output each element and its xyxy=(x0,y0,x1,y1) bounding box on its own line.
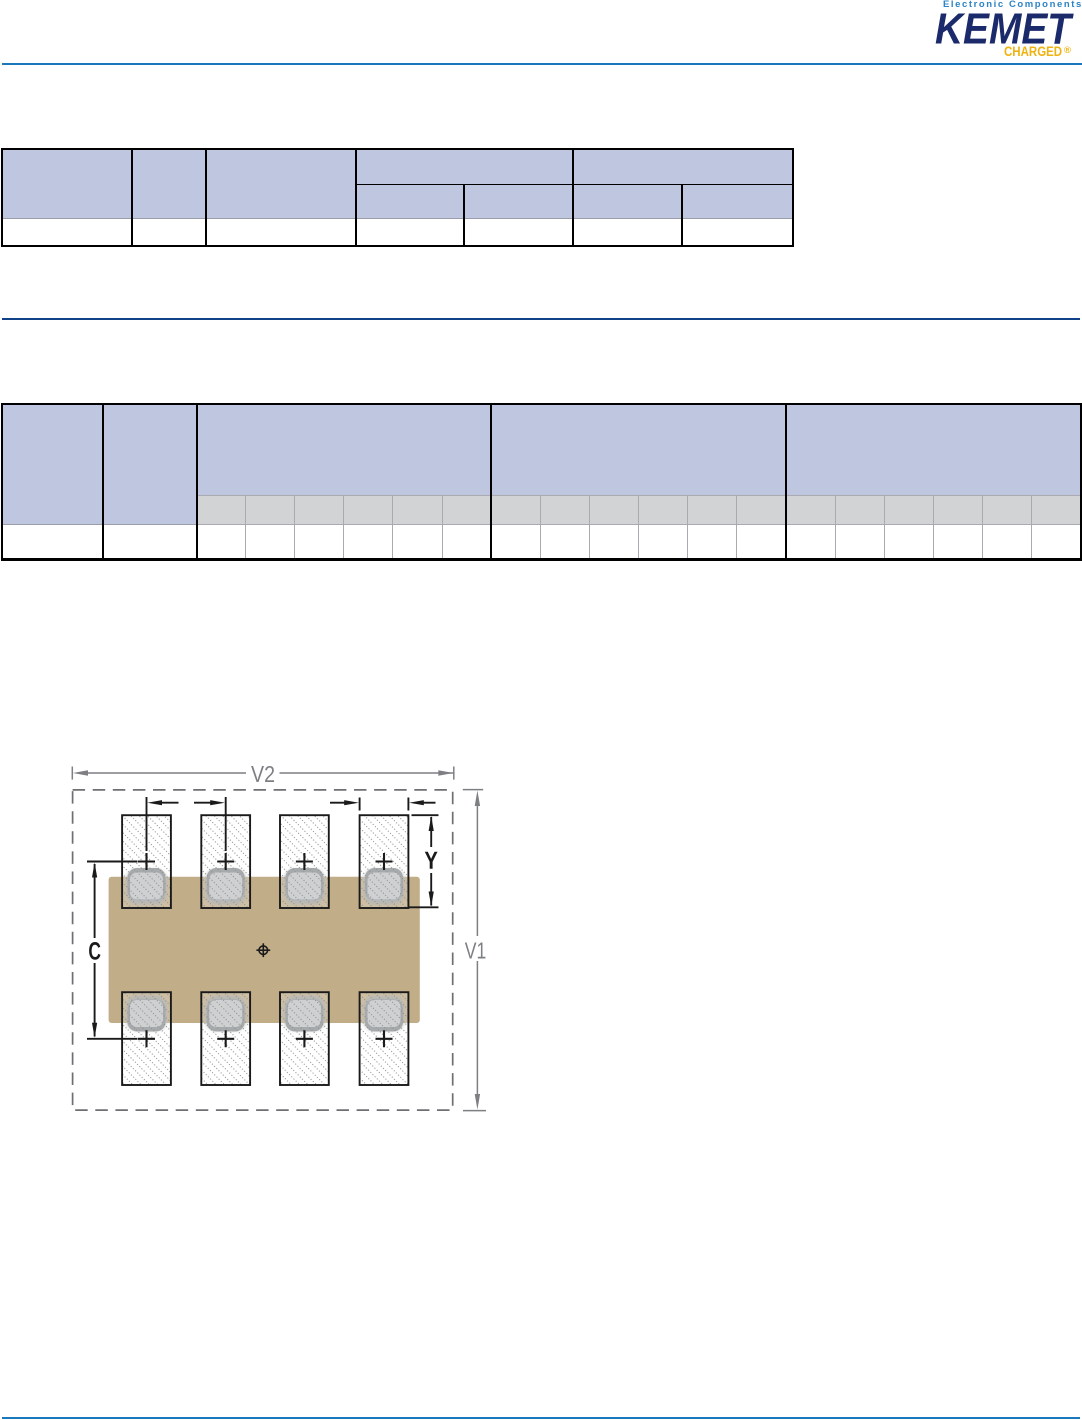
svg-text:V1: V1 xyxy=(465,937,487,963)
svg-text:V2: V2 xyxy=(251,761,275,787)
